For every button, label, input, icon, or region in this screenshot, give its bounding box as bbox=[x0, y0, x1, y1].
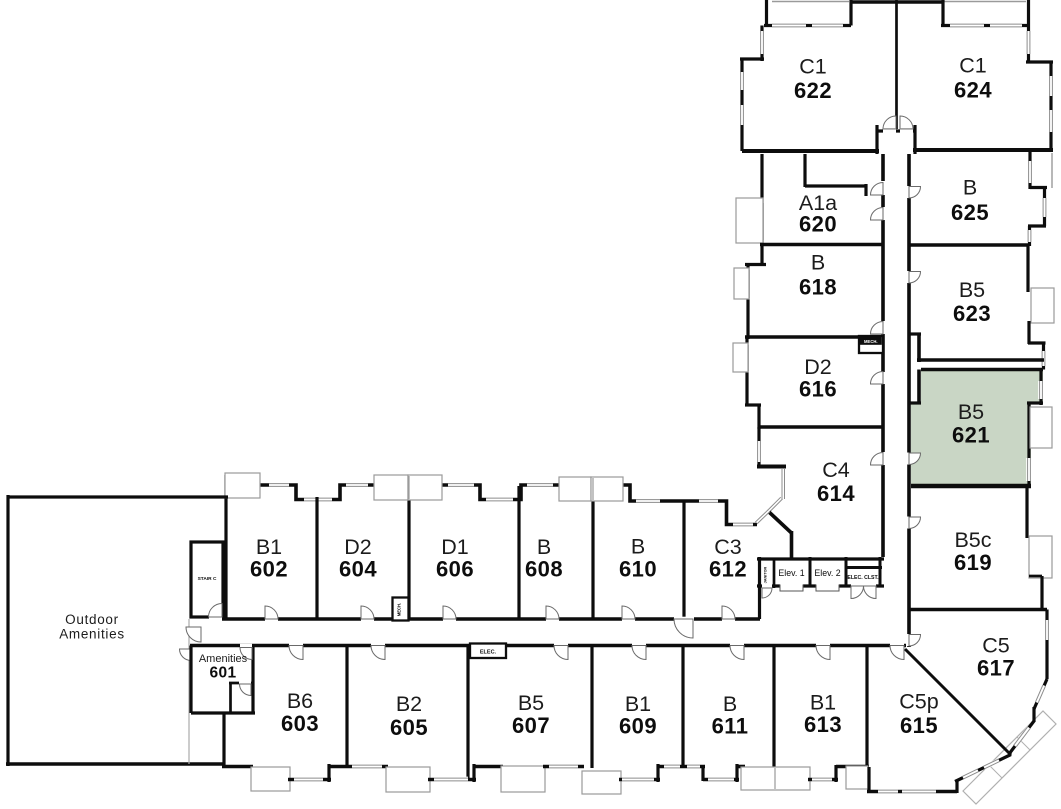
svg-text:Outdoor: Outdoor bbox=[65, 612, 119, 627]
svg-text:B1: B1 bbox=[256, 535, 282, 559]
svg-text:621: 621 bbox=[952, 423, 990, 448]
svg-text:MECH.: MECH. bbox=[397, 603, 402, 617]
svg-text:B5: B5 bbox=[959, 278, 985, 302]
svg-text:619: 619 bbox=[954, 550, 992, 575]
svg-text:B: B bbox=[537, 535, 551, 559]
svg-text:B: B bbox=[723, 692, 737, 716]
svg-text:B5: B5 bbox=[518, 691, 544, 715]
svg-text:B: B bbox=[963, 176, 977, 200]
svg-text:C1: C1 bbox=[799, 55, 826, 79]
svg-text:B2: B2 bbox=[396, 692, 422, 716]
svg-text:617: 617 bbox=[977, 656, 1015, 681]
svg-text:B1: B1 bbox=[625, 692, 651, 716]
svg-text:Elev. 1: Elev. 1 bbox=[778, 568, 804, 578]
svg-text:B6: B6 bbox=[287, 689, 313, 713]
svg-text:Amenities: Amenities bbox=[199, 653, 248, 665]
svg-text:Amenities: Amenities bbox=[59, 627, 125, 642]
svg-text:D1: D1 bbox=[441, 535, 468, 559]
svg-text:606: 606 bbox=[436, 557, 474, 582]
svg-text:611: 611 bbox=[712, 714, 749, 739]
svg-text:B1: B1 bbox=[810, 691, 836, 715]
svg-text:ELEC.: ELEC. bbox=[480, 650, 497, 656]
svg-text:616: 616 bbox=[799, 377, 837, 402]
svg-text:615: 615 bbox=[900, 713, 938, 738]
svg-text:625: 625 bbox=[951, 200, 989, 225]
svg-text:B5: B5 bbox=[958, 400, 984, 424]
svg-text:B: B bbox=[811, 251, 825, 275]
svg-text:603: 603 bbox=[281, 711, 319, 736]
svg-text:C4: C4 bbox=[822, 458, 850, 482]
svg-text:610: 610 bbox=[619, 557, 657, 582]
svg-text:JANITOR: JANITOR bbox=[764, 566, 768, 583]
svg-text:623: 623 bbox=[953, 301, 991, 326]
svg-text:622: 622 bbox=[794, 78, 832, 103]
svg-text:620: 620 bbox=[799, 212, 837, 237]
svg-text:D2: D2 bbox=[804, 355, 831, 379]
svg-text:604: 604 bbox=[339, 557, 377, 582]
svg-text:607: 607 bbox=[512, 713, 550, 738]
svg-text:MECH.: MECH. bbox=[864, 339, 878, 344]
svg-text:ELEC. CLST.: ELEC. CLST. bbox=[847, 575, 879, 581]
svg-text:B5c: B5c bbox=[954, 528, 991, 552]
svg-text:602: 602 bbox=[250, 557, 288, 582]
svg-text:C5p: C5p bbox=[899, 690, 938, 714]
svg-text:624: 624 bbox=[954, 78, 992, 103]
svg-text:613: 613 bbox=[804, 712, 842, 737]
svg-text:612: 612 bbox=[709, 557, 747, 582]
svg-text:601: 601 bbox=[209, 665, 236, 682]
svg-text:C5: C5 bbox=[982, 634, 1010, 658]
svg-text:STAIR C: STAIR C bbox=[198, 576, 217, 582]
svg-text:605: 605 bbox=[390, 715, 428, 740]
svg-text:D2: D2 bbox=[344, 535, 371, 559]
svg-text:618: 618 bbox=[799, 275, 837, 300]
svg-text:C1: C1 bbox=[959, 54, 986, 78]
svg-text:C3: C3 bbox=[714, 535, 742, 559]
svg-text:Elev. 2: Elev. 2 bbox=[814, 568, 840, 578]
svg-text:614: 614 bbox=[817, 481, 855, 506]
svg-text:B: B bbox=[631, 535, 645, 559]
svg-text:608: 608 bbox=[525, 557, 563, 582]
svg-text:609: 609 bbox=[619, 714, 657, 739]
